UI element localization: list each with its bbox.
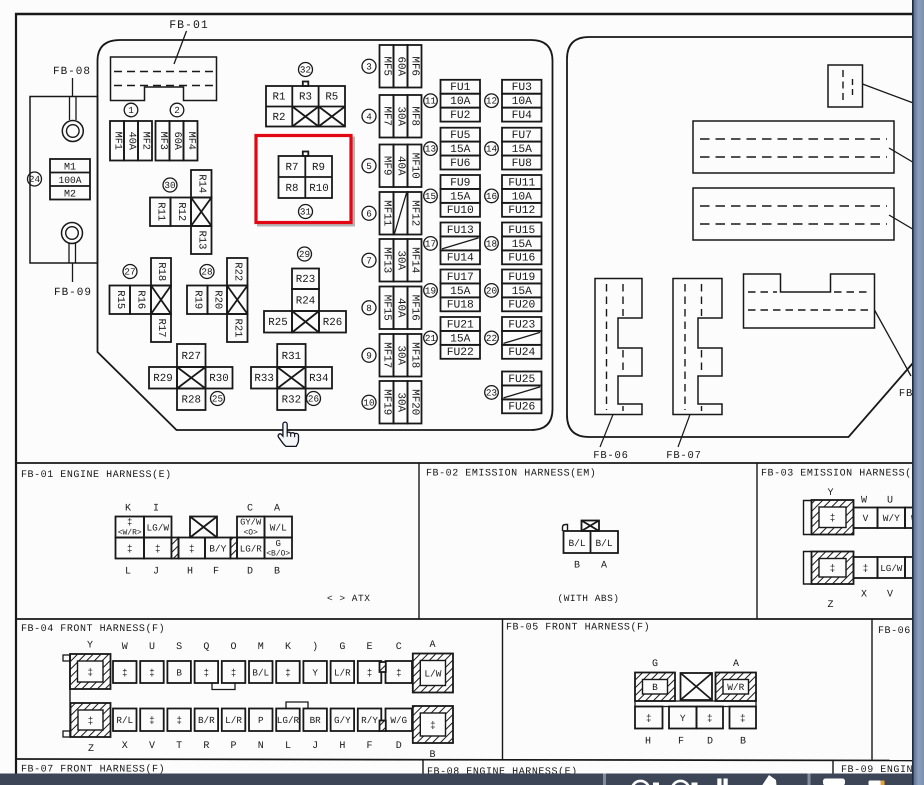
svg-text:R21: R21	[231, 319, 243, 338]
svg-text:23: 23	[486, 387, 497, 398]
svg-text:30A: 30A	[395, 393, 407, 413]
svg-text:‡: ‡	[149, 667, 155, 678]
svg-text:19: 19	[425, 285, 436, 296]
svg-text:U: U	[149, 642, 155, 653]
svg-text:V: V	[149, 741, 155, 752]
svg-text:R27: R27	[182, 351, 201, 363]
svg-text:MF11: MF11	[381, 200, 393, 226]
svg-text:C: C	[396, 642, 402, 653]
svg-text:(WITH ABS): (WITH ABS)	[558, 593, 620, 604]
svg-text:1: 1	[128, 105, 134, 116]
svg-text:X: X	[122, 741, 128, 752]
svg-text:MF7: MF7	[381, 107, 393, 126]
svg-text:BR: BR	[310, 715, 322, 726]
svg-text:29: 29	[299, 249, 310, 260]
svg-text:30A: 30A	[395, 346, 407, 366]
svg-text:A: A	[429, 640, 435, 651]
svg-text:21: 21	[425, 333, 437, 344]
svg-text:MF13: MF13	[381, 247, 393, 273]
svg-text:22: 22	[486, 333, 497, 344]
svg-text:G: G	[339, 642, 345, 653]
svg-text:10A: 10A	[512, 96, 533, 108]
svg-text:7: 7	[366, 255, 372, 266]
svg-text:A: A	[733, 659, 739, 670]
svg-text:15A: 15A	[450, 191, 471, 203]
svg-text:‡: ‡	[176, 715, 182, 726]
svg-text:K: K	[125, 504, 131, 515]
svg-text:9: 9	[366, 350, 372, 361]
svg-text:L/W: L/W	[424, 668, 441, 679]
svg-text:R/Y: R/Y	[361, 715, 378, 726]
svg-text:FU18: FU18	[447, 300, 474, 312]
svg-text:LG/R: LG/R	[277, 715, 300, 726]
svg-text:H: H	[645, 737, 651, 748]
svg-text:B/L: B/L	[568, 538, 585, 549]
svg-text:A: A	[601, 561, 607, 572]
svg-text:20: 20	[486, 285, 497, 296]
svg-text:R12: R12	[175, 202, 187, 221]
svg-text:15A: 15A	[512, 239, 533, 251]
svg-text:6: 6	[366, 208, 372, 219]
svg-text:W/L: W/L	[270, 522, 287, 533]
svg-text:R2: R2	[273, 112, 286, 124]
svg-text:B: B	[429, 750, 435, 761]
svg-text:FB-03 EMISSION HARNESS(EM): FB-03 EMISSION HARNESS(EM)	[761, 468, 924, 480]
svg-text:R29: R29	[153, 373, 172, 385]
svg-text:‡: ‡	[87, 667, 93, 678]
svg-text:60A: 60A	[395, 57, 407, 77]
svg-text:C: C	[247, 504, 253, 515]
svg-text:30: 30	[164, 180, 175, 191]
svg-text:MF14: MF14	[409, 247, 421, 273]
svg-text:31: 31	[300, 207, 312, 218]
svg-text:MF20: MF20	[409, 389, 421, 415]
svg-text:‡: ‡	[231, 667, 237, 678]
svg-text:15A: 15A	[512, 286, 533, 298]
svg-text:FU17: FU17	[447, 272, 474, 284]
svg-text:‡: ‡	[830, 513, 836, 524]
svg-text:‡: ‡	[127, 518, 132, 528]
svg-text:FB-05 FRONT HARNESS(F): FB-05 FRONT HARNESS(F)	[506, 622, 650, 634]
svg-text:Y: Y	[827, 488, 833, 499]
svg-text:T: T	[176, 741, 182, 752]
svg-text:FB-08: FB-08	[53, 66, 91, 78]
svg-text:G: G	[275, 539, 280, 549]
svg-text:4: 4	[366, 111, 372, 122]
svg-text:R23: R23	[296, 274, 315, 286]
svg-text:FU10: FU10	[447, 205, 474, 217]
svg-text:R1: R1	[273, 92, 286, 104]
svg-text:‡: ‡	[646, 713, 652, 724]
svg-text:FU24: FU24	[508, 347, 535, 359]
svg-text:B/L: B/L	[595, 538, 612, 549]
svg-text:R13: R13	[195, 231, 207, 250]
svg-text:FU16: FU16	[508, 253, 535, 265]
svg-text:W: W	[122, 642, 128, 653]
svg-text:‡: ‡	[430, 720, 436, 731]
svg-text:Y: Y	[87, 641, 93, 652]
svg-text:R3: R3	[299, 92, 312, 104]
svg-text:W/Y: W/Y	[883, 513, 900, 524]
svg-text:MF6: MF6	[409, 57, 421, 76]
svg-text:MF15: MF15	[381, 295, 393, 321]
svg-text:MF12: MF12	[409, 200, 421, 226]
svg-text:Z: Z	[88, 744, 94, 755]
svg-text:24: 24	[29, 174, 41, 185]
svg-text:R10: R10	[309, 183, 328, 195]
svg-text:Y: Y	[680, 713, 686, 724]
svg-text:L/R: L/R	[225, 715, 242, 726]
svg-text:‡: ‡	[863, 563, 869, 574]
svg-text:MF18: MF18	[409, 342, 421, 368]
svg-text:O: O	[231, 642, 237, 653]
svg-text:FB-01 ENGINE HARNESS(E): FB-01 ENGINE HARNESS(E)	[21, 469, 172, 481]
svg-text:V: V	[887, 590, 893, 601]
svg-text:27: 27	[124, 267, 135, 278]
svg-text:‡: ‡	[155, 543, 161, 554]
svg-text:R20: R20	[211, 290, 223, 309]
svg-text:<O>: <O>	[243, 529, 258, 538]
svg-text:<B/O>: <B/O>	[266, 550, 290, 559]
svg-text:M2: M2	[64, 190, 76, 201]
svg-text:B: B	[274, 567, 280, 578]
svg-text:FB-07: FB-07	[666, 450, 702, 462]
svg-text:MF19: MF19	[381, 389, 393, 415]
svg-text:R24: R24	[296, 295, 315, 307]
svg-text:‡: ‡	[122, 667, 128, 678]
svg-text:2: 2	[174, 105, 180, 116]
svg-text:P: P	[231, 741, 237, 752]
svg-text:16: 16	[486, 191, 497, 202]
svg-text:FU3: FU3	[512, 82, 533, 94]
svg-text:28: 28	[201, 267, 212, 278]
svg-text:‡: ‡	[285, 667, 291, 678]
svg-text:MF3: MF3	[157, 132, 168, 150]
svg-text:FU12: FU12	[508, 205, 535, 217]
svg-text:W: W	[861, 496, 867, 507]
svg-text:B: B	[574, 561, 580, 572]
svg-text:‡: ‡	[707, 713, 713, 724]
svg-text:15A: 15A	[512, 144, 533, 156]
svg-text:40A: 40A	[395, 298, 407, 318]
svg-text:R34: R34	[309, 373, 328, 385]
svg-text:GY/W: GY/W	[240, 518, 262, 528]
svg-text:MF2: MF2	[140, 132, 151, 150]
svg-text:I: I	[153, 504, 159, 515]
svg-text:32: 32	[300, 65, 311, 76]
svg-text:D: D	[707, 737, 713, 748]
svg-text:60A: 60A	[171, 132, 182, 151]
svg-text:10A: 10A	[512, 191, 533, 203]
svg-text:F: F	[367, 741, 373, 752]
svg-text:FU4: FU4	[512, 110, 533, 122]
svg-text:FB-06: FB-06	[593, 450, 629, 462]
svg-text:R31: R31	[282, 351, 301, 363]
svg-text:‡: ‡	[149, 715, 155, 726]
svg-text:LG/R: LG/R	[240, 543, 263, 554]
svg-text:< > ATX: < > ATX	[327, 593, 370, 604]
svg-text:Z: Z	[827, 600, 833, 611]
svg-text:K: K	[285, 642, 291, 653]
svg-text:26: 26	[308, 394, 319, 405]
svg-text:B: B	[176, 667, 182, 678]
svg-text:R22: R22	[231, 262, 243, 281]
svg-text:<W/R>: <W/R>	[118, 529, 142, 538]
svg-text:R/L: R/L	[116, 715, 133, 726]
svg-text:‡: ‡	[367, 667, 373, 678]
svg-text:FU19: FU19	[508, 272, 535, 284]
svg-text:R26: R26	[323, 317, 342, 329]
svg-text:40A: 40A	[395, 156, 407, 176]
svg-text:MF10: MF10	[409, 153, 421, 179]
svg-text:R7: R7	[286, 162, 299, 174]
svg-text:FB-01: FB-01	[169, 19, 209, 32]
svg-text:R17: R17	[155, 319, 167, 338]
svg-text:J: J	[312, 741, 318, 752]
svg-text:B: B	[652, 682, 658, 693]
svg-text:B: B	[740, 737, 746, 748]
svg-text:H: H	[187, 567, 193, 578]
svg-text:FU7: FU7	[512, 130, 532, 142]
svg-text:‡: ‡	[127, 543, 133, 554]
svg-text:FU20: FU20	[508, 300, 535, 312]
svg-text:LG/W: LG/W	[880, 563, 903, 574]
svg-text:R30: R30	[209, 373, 228, 385]
svg-text:15A: 15A	[450, 144, 471, 156]
svg-text:13: 13	[425, 144, 436, 155]
svg-text:MF8: MF8	[409, 107, 421, 126]
svg-text:FU26: FU26	[508, 402, 535, 414]
svg-text:S: S	[176, 642, 182, 653]
svg-text:H: H	[339, 741, 345, 752]
svg-text:B/L: B/L	[252, 667, 269, 678]
svg-text:15A: 15A	[450, 333, 471, 345]
svg-text:18: 18	[486, 238, 497, 249]
svg-text:FU5: FU5	[450, 130, 471, 142]
svg-text:G: G	[652, 659, 658, 670]
svg-text:FB-04 FRONT HARNESS(F): FB-04 FRONT HARNESS(F)	[21, 623, 165, 635]
svg-text:MF16: MF16	[409, 295, 421, 321]
svg-text:J: J	[153, 567, 159, 578]
svg-text:R18: R18	[155, 262, 167, 281]
svg-text:M: M	[258, 642, 264, 653]
svg-text:R9: R9	[312, 162, 325, 174]
svg-text:5: 5	[366, 161, 372, 172]
svg-text:FU6: FU6	[450, 158, 471, 170]
svg-text:G/Y: G/Y	[334, 715, 351, 726]
svg-text:R5: R5	[325, 92, 338, 104]
svg-text:FU9: FU9	[450, 177, 470, 189]
svg-text:B/Y: B/Y	[209, 543, 226, 554]
svg-text:R11: R11	[154, 202, 166, 221]
svg-text:FU14: FU14	[447, 253, 474, 265]
svg-text:30A: 30A	[395, 107, 407, 127]
svg-text:D: D	[396, 741, 402, 752]
svg-text:14: 14	[486, 144, 498, 155]
svg-text:D: D	[247, 567, 253, 578]
svg-text:FU22: FU22	[447, 347, 474, 359]
svg-text:FU23: FU23	[508, 319, 535, 331]
svg-text:): )	[312, 641, 318, 653]
svg-text:‡: ‡	[189, 543, 195, 554]
svg-text:Y: Y	[312, 667, 318, 678]
svg-text:L: L	[285, 741, 291, 752]
svg-text:‡: ‡	[830, 563, 836, 574]
svg-text:FB-09: FB-09	[54, 287, 92, 299]
svg-text:3: 3	[366, 61, 372, 72]
svg-text:MF5: MF5	[381, 57, 393, 76]
svg-text:V: V	[863, 513, 869, 524]
svg-text:FU25: FU25	[508, 374, 535, 386]
svg-text:U: U	[887, 496, 893, 507]
svg-text:R33: R33	[254, 373, 273, 385]
svg-text:‡: ‡	[740, 713, 746, 724]
svg-text:B/R: B/R	[198, 715, 215, 726]
svg-text:FB-02 EMISSION HARNESS(EM): FB-02 EMISSION HARNESS(EM)	[426, 468, 596, 480]
svg-text:30A: 30A	[395, 251, 407, 271]
svg-text:FU21: FU21	[447, 319, 474, 331]
svg-text:R32: R32	[282, 395, 301, 407]
svg-text:X: X	[861, 590, 867, 601]
svg-text:MF1: MF1	[112, 132, 123, 150]
svg-text:A: A	[274, 504, 280, 515]
svg-text:40A: 40A	[126, 132, 137, 151]
svg-text:FB: FB	[899, 388, 913, 400]
svg-text:15A: 15A	[450, 286, 471, 298]
svg-text:R16: R16	[135, 290, 147, 309]
svg-text:‡: ‡	[204, 667, 210, 678]
svg-text:E: E	[367, 642, 373, 653]
svg-text:‡: ‡	[396, 667, 402, 678]
svg-text:R19: R19	[191, 290, 203, 309]
svg-text:R25: R25	[268, 317, 287, 329]
svg-text:12: 12	[486, 96, 497, 107]
svg-text:FU11: FU11	[508, 177, 535, 189]
svg-text:FU8: FU8	[512, 158, 533, 170]
svg-text:F: F	[678, 737, 684, 748]
svg-text:15: 15	[425, 191, 436, 202]
svg-text:‡: ‡	[88, 715, 94, 726]
svg-text:R14: R14	[195, 174, 207, 193]
svg-text:17: 17	[425, 238, 436, 249]
svg-text:FU15: FU15	[508, 225, 535, 237]
svg-text:N: N	[258, 741, 264, 752]
svg-text:FB-06: FB-06	[878, 626, 911, 637]
svg-text:W/R: W/R	[727, 682, 744, 693]
svg-text:10A: 10A	[450, 96, 471, 108]
svg-text:FU1: FU1	[450, 82, 471, 94]
svg-text:8: 8	[366, 303, 372, 314]
svg-text:L/R: L/R	[334, 667, 351, 678]
svg-text:W/G: W/G	[390, 715, 407, 726]
svg-text:25: 25	[212, 394, 223, 405]
svg-text:R28: R28	[182, 395, 201, 407]
svg-text:MF17: MF17	[381, 342, 393, 368]
svg-text:100A: 100A	[58, 175, 81, 186]
svg-text:L: L	[125, 567, 131, 578]
svg-text:10: 10	[363, 397, 374, 408]
svg-text:P: P	[258, 715, 264, 726]
svg-text:M1: M1	[64, 163, 76, 174]
svg-text:Q: Q	[203, 642, 209, 653]
svg-text:11: 11	[425, 96, 437, 107]
svg-text:R: R	[203, 741, 209, 752]
svg-text:MF9: MF9	[381, 156, 393, 175]
svg-text:LG/W: LG/W	[146, 522, 169, 533]
svg-text:R8: R8	[286, 183, 299, 195]
svg-text:F: F	[213, 567, 219, 578]
svg-text:FU13: FU13	[447, 225, 474, 237]
svg-text:R15: R15	[114, 290, 126, 309]
svg-text:FU2: FU2	[450, 110, 470, 122]
svg-text:MF4: MF4	[185, 132, 196, 150]
